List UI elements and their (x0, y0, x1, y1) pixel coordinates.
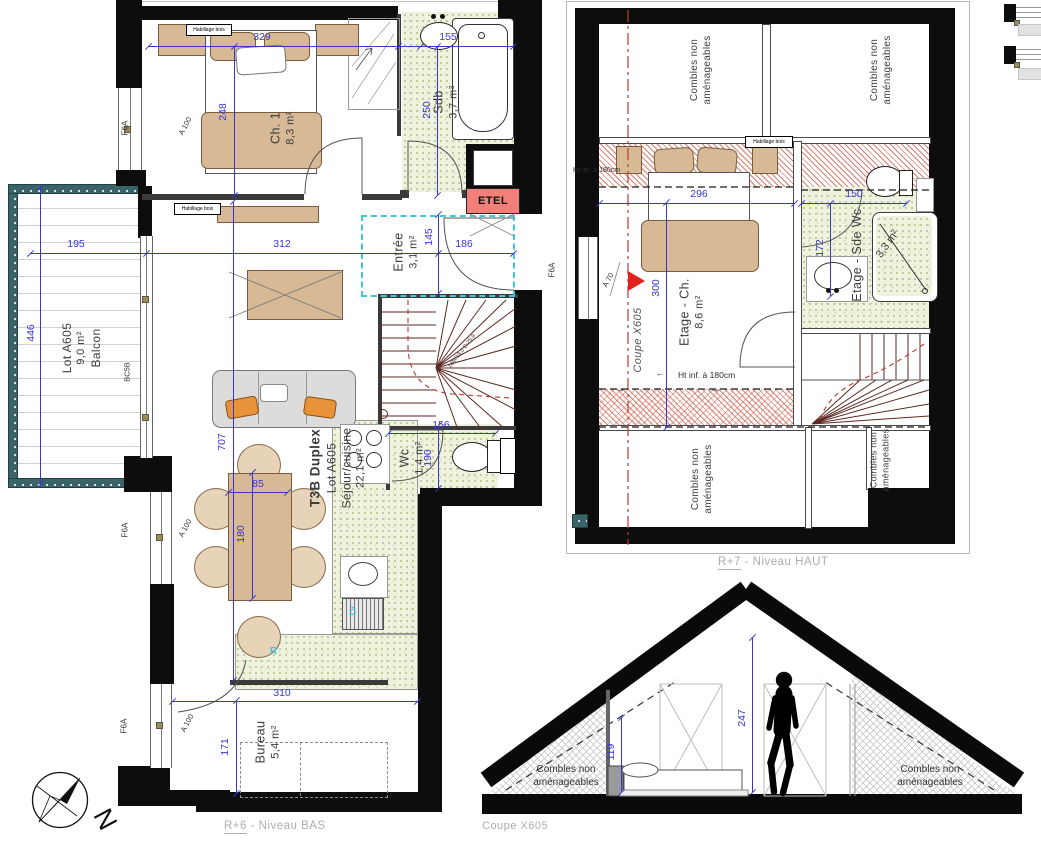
dim-wc-w: 156 (432, 419, 450, 431)
room-area: 8,3 m² (284, 111, 298, 145)
dim-line (438, 426, 439, 488)
plan-bas: ETEL (0, 0, 545, 841)
room-label-ch1: Ch. 1 8,3 m² (268, 111, 297, 145)
room-area: 5,4 m² (269, 721, 283, 764)
door-ch1 (305, 138, 362, 194)
tag-f6a-1: F6A (121, 121, 130, 136)
dim-entree-d: 145 (423, 228, 435, 246)
balcon-name: Balcon (89, 323, 104, 374)
dim-entree-w: 186 (455, 238, 473, 250)
dim-section-knee: 119 (605, 744, 617, 761)
dim-line (599, 203, 795, 204)
caption-level: R+7 (718, 556, 741, 570)
person-silhouette (769, 672, 796, 793)
tag-f6a-2: F6A (121, 523, 130, 538)
closet-lines (352, 22, 396, 104)
combles-label-1: Combles non aménageables (688, 34, 714, 106)
dim-section-height: 247 (736, 709, 748, 727)
dim-line (666, 203, 667, 427)
wall-detail-1 (1004, 4, 1041, 36)
door-entree (444, 218, 514, 290)
stair-note: 18M/18,0 G:25,8 (447, 333, 477, 369)
dim-line (752, 638, 753, 792)
ht-inf-arrow: → (656, 368, 665, 378)
balcon-lot: Lot A605 (60, 323, 75, 374)
detail-sill (1018, 68, 1041, 80)
hatch-arrow-1: → (615, 384, 625, 395)
wall-detail-2 (1004, 46, 1041, 80)
plan-haut: Habillage bois (560, 0, 1040, 580)
room-label-balcon: Lot A605 9,0 m² Balcon (60, 323, 104, 374)
combles-label-4: Combles non aménageables (868, 424, 891, 496)
door-arcs-upper (740, 192, 862, 367)
detail-line (1016, 17, 1041, 18)
tag-lv: LV (348, 606, 357, 616)
dim-line (233, 202, 234, 680)
balcon-area: 9,0 m² (75, 323, 89, 374)
dim-sdb-d: 250 (421, 101, 433, 119)
detail-line (1016, 7, 1041, 8)
desk-cross (229, 272, 341, 318)
dim-line (621, 718, 622, 792)
tag-habillage-1: Habillage bois (186, 24, 232, 36)
ht-inf-bottom: Ht inf. à 180cm (678, 370, 735, 380)
room-name: Etage - Sde Wc (850, 208, 866, 301)
section-bed (608, 763, 748, 796)
room-label-bureau: Bureau 5,4 m² (253, 721, 282, 764)
combles-label-3: Combles non aménageables (689, 443, 715, 515)
section-combles-right: Combles non aménageables (884, 763, 976, 789)
dim-line (236, 701, 237, 793)
dim-line (801, 203, 907, 204)
height-limit-dashed (599, 187, 929, 427)
architectural-drawing: ETEL (0, 0, 1041, 841)
section-combles-left: Combles non aménageables (520, 763, 612, 789)
room-area: 8,6 m² (693, 278, 707, 346)
dim-sdb-w: 155 (439, 31, 457, 43)
unit-room: Séjour/cuisine (340, 428, 355, 509)
room-label-etage-sdewc: Etage - Sde Wc (850, 208, 866, 301)
caption-suffix: - Niveau BAS (251, 820, 326, 832)
door-sdb (408, 141, 462, 194)
etel-brace (470, 214, 514, 236)
tag-f6a-upper: F6A (548, 263, 557, 278)
dim-line (30, 253, 514, 254)
hatch-arrow-2: → (710, 384, 720, 395)
room-label-sdb: Sdb 3,7 m² (431, 85, 460, 119)
dim-line (437, 47, 438, 195)
north-compass: N (20, 762, 140, 841)
room-name: Ch. 1 (268, 111, 284, 145)
tag-f6a-3: F6A (120, 719, 129, 734)
dim-sejour-d: 707 (216, 433, 228, 451)
stairs-haut (801, 334, 929, 424)
detail-line (1016, 54, 1041, 55)
dim-bureau-d: 171 (219, 738, 231, 756)
plan-haut-linework (560, 0, 1040, 560)
north-letter: N (87, 804, 123, 835)
dim-sdewc-w: 150 (845, 188, 863, 200)
room-area: 3,7 m² (447, 85, 461, 119)
tag-habillage-2: Habillage bois (174, 203, 221, 215)
dim-line (252, 473, 253, 598)
compass-needle (60, 778, 80, 804)
door-etage-ch (740, 312, 795, 367)
room-name: Wc (397, 441, 413, 475)
dim-line (172, 701, 418, 702)
dim-bedroom-d: 248 (217, 103, 229, 121)
combles-label-2: Combles non aménageables (868, 34, 894, 106)
dim-line (228, 492, 288, 493)
dim-line (388, 433, 496, 434)
dim-sdewc-d: 172 (814, 239, 826, 257)
tag-fridge: R (270, 646, 277, 657)
detail-line (1016, 59, 1041, 60)
caption-niveau-bas: R+6 - Niveau BAS (224, 820, 326, 832)
tag-bc5b: BC5B (123, 362, 132, 382)
detail-line (1016, 12, 1041, 13)
ht-inf-top: Ht inf. à 180cm (573, 167, 620, 174)
unit-area: 22,1 m² (355, 428, 369, 509)
unit-type: T3B Duplex (308, 428, 325, 509)
room-name: Entrée (391, 232, 407, 271)
coupe-line-label: Coupe X605 (632, 307, 646, 372)
caption-suffix: - Niveau HAUT (745, 556, 829, 568)
caption-level: R+6 (224, 820, 247, 834)
dim-line (40, 188, 41, 484)
dim-line (148, 46, 514, 47)
dim-line (234, 47, 235, 195)
detail-line (1016, 49, 1041, 50)
dim-bureau-w: 310 (273, 687, 291, 699)
room-name: Bureau (253, 721, 269, 764)
dim-ch-d: 300 (650, 279, 662, 297)
dim-bedroom-w: 329 (253, 31, 271, 43)
room-name: Sdb (431, 85, 447, 119)
unit-label-t3b: T3B Duplex Lot A605 Séjour/cuisine 22,1 … (308, 428, 369, 509)
floor-slab (482, 794, 1022, 814)
dim-balcon-d: 446 (25, 324, 37, 342)
dim-wc-d: 190 (422, 449, 434, 467)
room-label-etage-ch: Etage - Ch. 8,6 m² (677, 278, 706, 346)
dim-line (438, 215, 439, 293)
dim-ch-w: 296 (690, 188, 708, 200)
room-label-entree: Entrée 3,1 m² (391, 232, 420, 271)
dim-balcon-w: 195 (67, 238, 85, 250)
detail-sill (1018, 24, 1041, 36)
room-name: Etage - Ch. (677, 278, 693, 346)
dim-line (830, 204, 831, 296)
caption-niveau-haut: R+7 - Niveau HAUT (718, 556, 828, 568)
dim-table-w: 85 (252, 478, 264, 490)
unit-lot: Lot A605 (325, 428, 340, 509)
door-arcs (178, 138, 514, 712)
section-view: Combles non aménageables Combles non amé… (478, 580, 1038, 821)
dim-table-d: 180 (235, 525, 247, 543)
section-cut-arrow (628, 271, 645, 291)
room-area: 3,1 m² (407, 232, 421, 271)
dim-sejour-w: 312 (273, 238, 291, 250)
caption-coupe: Coupe X605 (482, 820, 548, 832)
